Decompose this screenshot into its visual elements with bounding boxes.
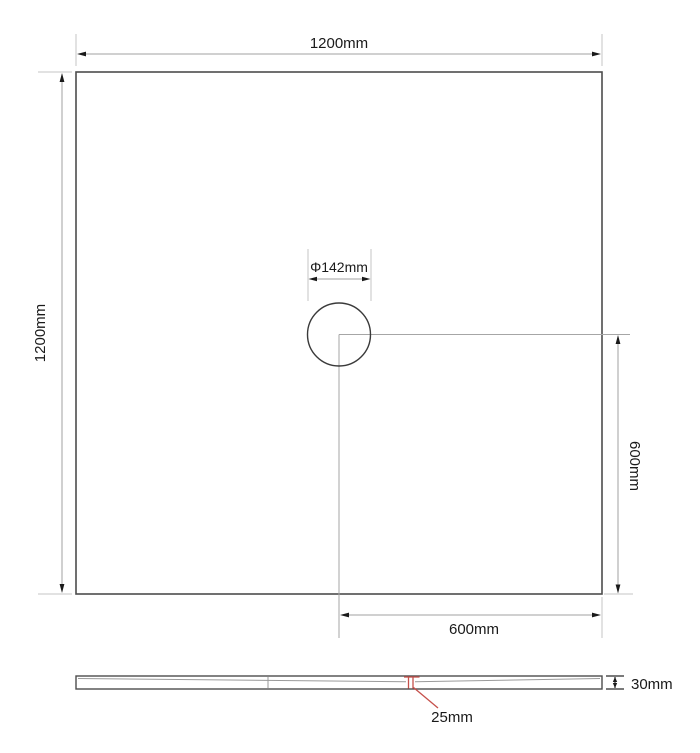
top-width-label: 1200mm <box>310 35 368 52</box>
arrowhead-down-icon <box>60 584 65 593</box>
arrowhead-down-icon <box>616 585 621 594</box>
arrowhead-left-icon <box>77 52 86 57</box>
arrowhead-right-icon <box>592 52 601 57</box>
dimension-offset-bottom: 600mm <box>340 597 602 638</box>
offset-right-label: 600mm <box>626 441 643 491</box>
arrowhead-up-icon <box>613 677 617 682</box>
arrowhead-right-icon <box>592 613 601 618</box>
profile-view: 25mm 30mm <box>76 676 673 726</box>
left-height-label: 1200mm <box>32 304 49 362</box>
plan-view: 1200mm 1200mm Φ142mm <box>32 34 643 638</box>
drain-diameter-label: Φ142mm <box>310 259 368 275</box>
shower-tray-dimension-drawing: 1200mm 1200mm Φ142mm <box>0 0 700 753</box>
arrowhead-left-icon <box>340 613 349 618</box>
arrowhead-up-icon <box>60 73 65 82</box>
leader-line <box>414 688 439 709</box>
drain-detail-label: 25mm <box>431 709 473 726</box>
dimension-offset-right: 600mm <box>604 335 643 594</box>
arrowhead-down-icon <box>613 683 617 688</box>
profile-outline <box>76 676 602 689</box>
dimension-thickness: 30mm <box>606 676 673 693</box>
thickness-label: 30mm <box>631 676 673 693</box>
dimension-left-height: 1200mm <box>32 72 72 594</box>
offset-bottom-label: 600mm <box>449 621 499 638</box>
technical-drawing-page: 1200mm 1200mm Φ142mm <box>0 0 700 753</box>
arrowhead-up-icon <box>616 335 621 344</box>
dimension-top-width: 1200mm <box>76 34 602 66</box>
